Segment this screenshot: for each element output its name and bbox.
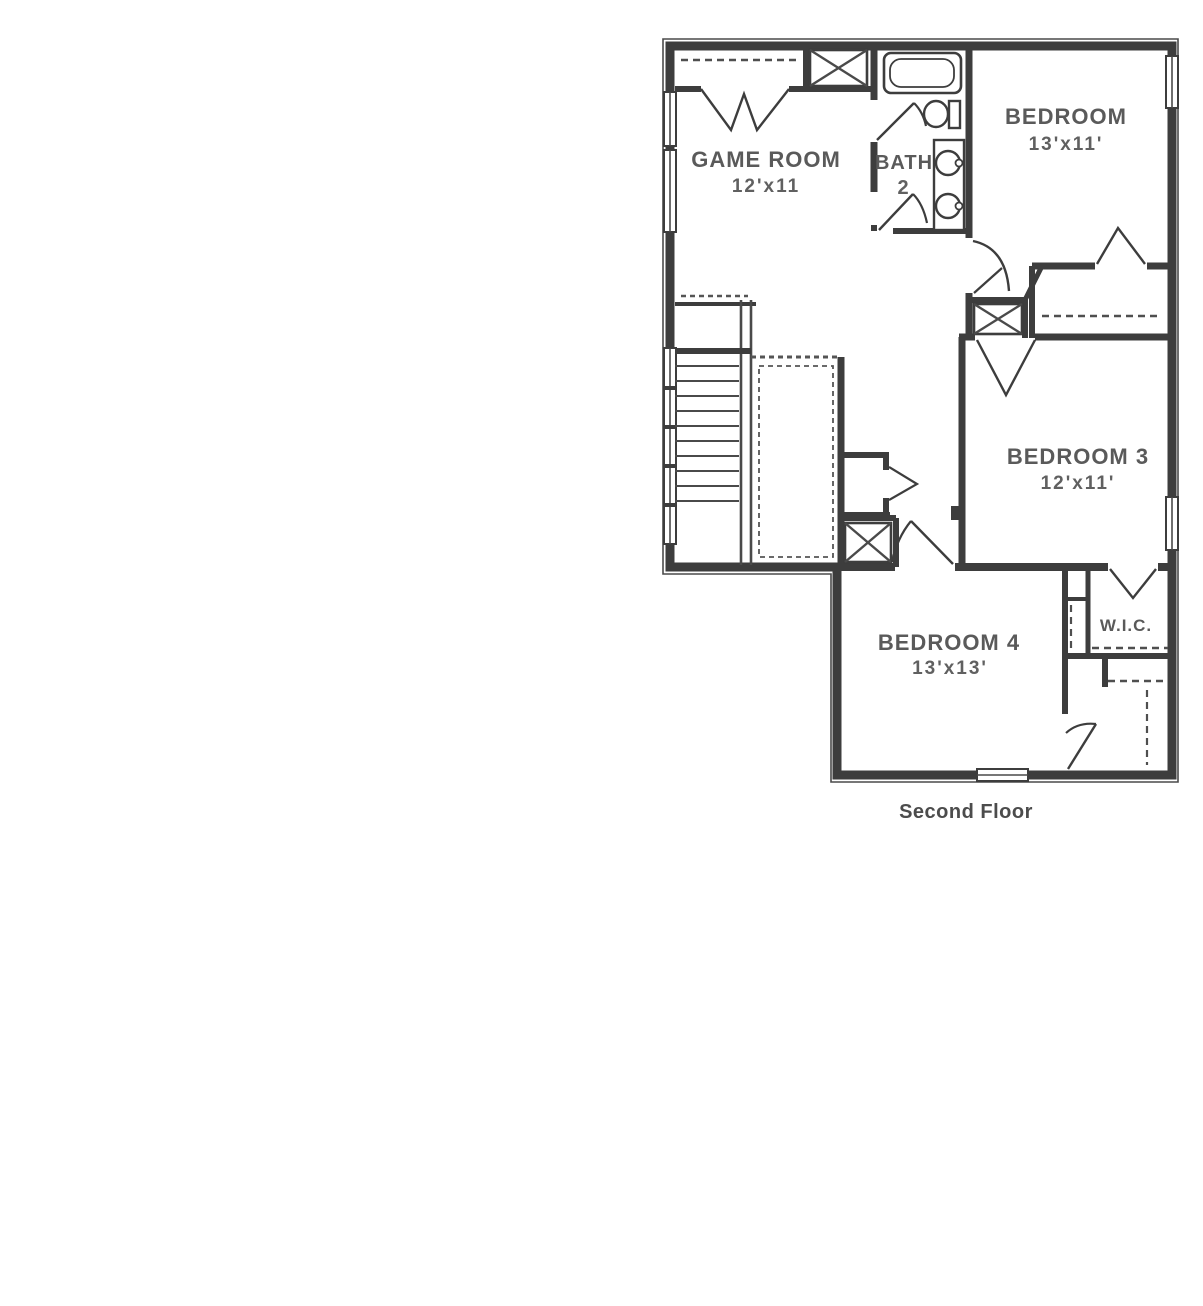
wall-stub [951,506,965,520]
chase-box-center [839,518,896,567]
chase-box-bedroom [974,304,1022,334]
window [1166,56,1178,108]
page-background [0,0,1203,1306]
window [1166,497,1178,550]
bathtub-icon [884,53,961,93]
window [664,92,676,232]
bedroom2-dims: 13'x11' [1029,134,1104,155]
floor-plan-drawing: GAME ROOM 12'x11 BATH 2 BEDROOM 13'x11' … [0,0,1203,1306]
bath-number: 2 [897,177,910,199]
bedroom4-label: BEDROOM 4 [878,630,1020,655]
wic-label: W.I.C. [1100,616,1152,635]
bedroom3-label: BEDROOM 3 [1007,444,1149,469]
vanity-sinks-icon [934,140,964,230]
bath-label: BATH [875,152,933,174]
bedroom4-dims: 13'x13' [912,658,988,679]
bedroom2-label: BEDROOM [1005,104,1127,129]
game-room-dims: 12'x11 [732,176,800,197]
floor-caption: Second Floor [899,801,1033,823]
window [663,348,677,544]
window [977,769,1028,781]
toilet-icon [924,101,960,128]
chase-box-top [810,50,867,86]
floor-plan-page: GAME ROOM 12'x11 BATH 2 BEDROOM 13'x11' … [0,0,1203,1306]
game-room-label: GAME ROOM [691,147,841,172]
bedroom3-dims: 12'x11' [1041,473,1116,494]
